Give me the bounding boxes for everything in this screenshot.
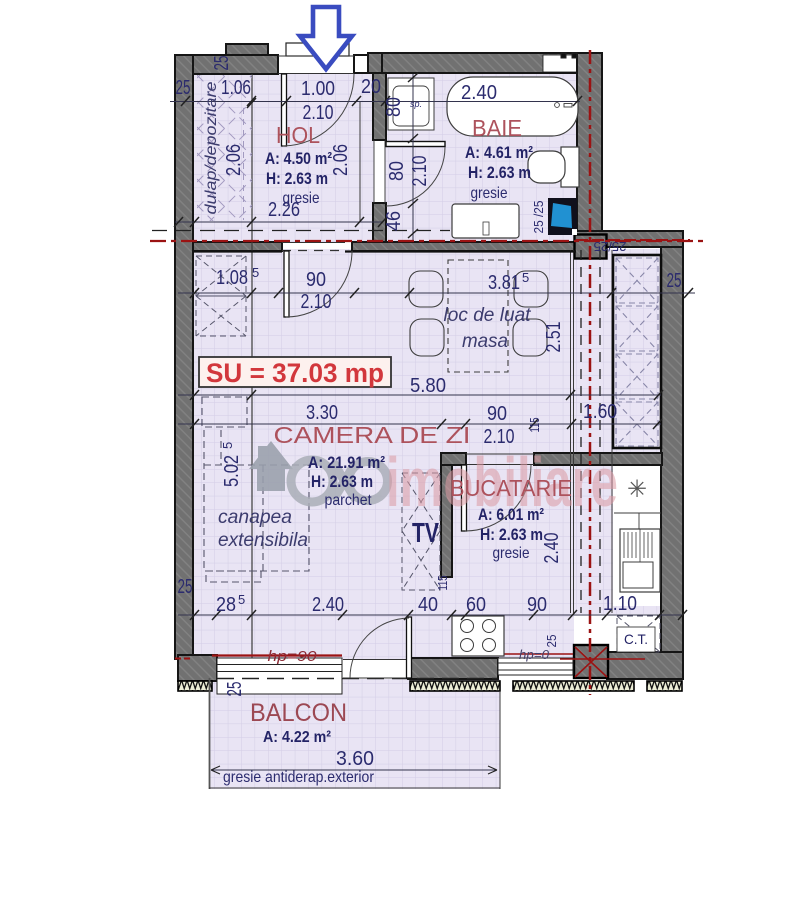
svg-text:hp=0: hp=0: [519, 647, 550, 662]
svg-text:A: 21.91 m²: A: 21.91 m²: [308, 453, 385, 472]
svg-text:canapea: canapea: [218, 507, 292, 528]
svg-text:90: 90: [487, 403, 507, 425]
svg-text:90: 90: [306, 269, 326, 291]
svg-text:25 /25: 25 /25: [531, 201, 546, 234]
svg-text:2.40: 2.40: [541, 533, 563, 564]
svg-text:masa: masa: [462, 331, 508, 352]
svg-text:A: 4.61 m²: A: 4.61 m²: [465, 143, 533, 162]
svg-text:1.00: 1.00: [301, 78, 335, 100]
svg-text:A: 6.01 m²: A: 6.01 m²: [478, 505, 544, 524]
svg-text:115: 115: [435, 576, 450, 591]
svg-text:2.40: 2.40: [312, 594, 344, 616]
svg-text:25: 25: [211, 56, 233, 71]
svg-text:2.10: 2.10: [301, 291, 332, 313]
svg-text:90: 90: [527, 594, 547, 616]
svg-text:25: 25: [544, 635, 559, 648]
svg-text:5.02: 5.02: [221, 455, 243, 487]
svg-text:2.40: 2.40: [461, 82, 497, 104]
svg-text:3.60: 3.60: [336, 748, 374, 770]
svg-text:2.51: 2.51: [543, 322, 565, 353]
svg-text:2.10: 2.10: [484, 426, 515, 448]
svg-text:1.10: 1.10: [603, 593, 637, 615]
svg-text:CAMERA DE ZI: CAMERA DE ZI: [274, 422, 471, 448]
svg-text:TV: TV: [412, 517, 439, 548]
svg-text:gresie: gresie: [493, 545, 530, 562]
svg-text:5: 5: [238, 592, 245, 607]
svg-text:hp=90: hp=90: [268, 648, 318, 665]
svg-text:5: 5: [252, 265, 259, 280]
svg-text:1.06: 1.06: [221, 77, 251, 99]
svg-text:extensibila: extensibila: [218, 530, 308, 551]
svg-text:46: 46: [383, 211, 405, 231]
svg-text:A: 4.22 m²: A: 4.22 m²: [263, 729, 331, 746]
svg-text:115: 115: [527, 418, 542, 433]
svg-text:80: 80: [386, 161, 408, 181]
svg-text:25: 25: [224, 682, 246, 697]
svg-text:1.60: 1.60: [583, 401, 617, 423]
svg-text:25/25: 25/25: [594, 239, 627, 254]
svg-text:20: 20: [361, 76, 381, 98]
svg-text:H: 2.63 m: H: 2.63 m: [468, 163, 531, 182]
svg-text:25: 25: [176, 77, 191, 99]
svg-text:60: 60: [466, 594, 486, 616]
svg-text:BAIE: BAIE: [472, 115, 522, 141]
svg-text:2.06: 2.06: [223, 144, 245, 176]
svg-text:2.10: 2.10: [303, 102, 334, 124]
svg-text:gresie: gresie: [471, 185, 508, 202]
svg-text:parchet: parchet: [325, 492, 372, 509]
svg-text:✳: ✳: [627, 476, 647, 503]
svg-text:HOL: HOL: [276, 122, 320, 148]
svg-text:A: 4.50 m²: A: 4.50 m²: [265, 149, 332, 168]
svg-text:5: 5: [220, 442, 235, 449]
svg-text:C.T.: C.T.: [624, 631, 648, 647]
svg-text:H: 2.63 m: H: 2.63 m: [480, 525, 543, 544]
svg-text:loc de luat: loc de luat: [444, 305, 532, 326]
svg-text:sp.: sp.: [410, 99, 422, 109]
svg-text:dulap/depozitare: dulap/depozitare: [203, 81, 220, 214]
svg-text:3.30: 3.30: [306, 402, 338, 424]
svg-text:gresie antiderap.exterior: gresie antiderap.exterior: [223, 769, 375, 786]
svg-text:3.81: 3.81: [488, 272, 520, 294]
svg-text:BUCATARIE: BUCATARIE: [450, 475, 572, 501]
svg-text:25: 25: [178, 576, 193, 598]
svg-text:5.80: 5.80: [410, 375, 446, 397]
svg-text:H: 2.63 m: H: 2.63 m: [311, 472, 373, 491]
svg-text:2.26: 2.26: [268, 199, 300, 221]
svg-text:80: 80: [383, 97, 405, 117]
svg-text:H: 2.63 m: H: 2.63 m: [266, 169, 328, 188]
svg-text:28: 28: [216, 594, 236, 616]
svg-text:40: 40: [418, 594, 438, 616]
svg-text:2.06: 2.06: [330, 144, 352, 176]
svg-text:2.10: 2.10: [409, 156, 431, 187]
svg-text:BALCON: BALCON: [250, 699, 347, 727]
svg-text:5: 5: [522, 270, 529, 285]
svg-text:1.08: 1.08: [216, 267, 248, 289]
svg-text:25: 25: [667, 270, 682, 292]
svg-text:SU = 37.03 mp: SU = 37.03 mp: [206, 358, 384, 388]
